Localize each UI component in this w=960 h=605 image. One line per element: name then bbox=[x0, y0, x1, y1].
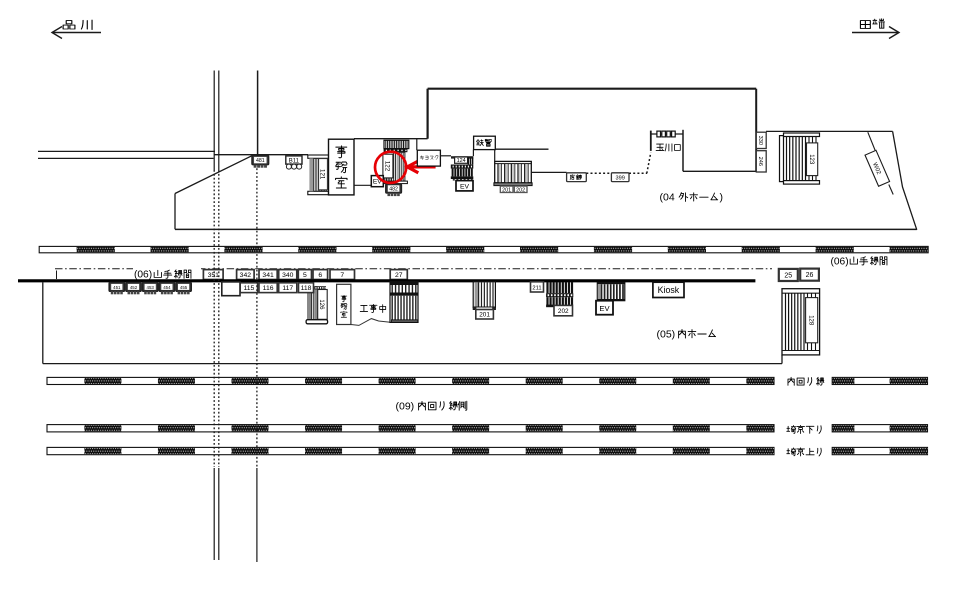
svg-text:341: 341 bbox=[262, 272, 274, 279]
svg-text:211: 211 bbox=[532, 285, 541, 291]
svg-text:117: 117 bbox=[282, 285, 293, 292]
svg-text:6: 6 bbox=[318, 272, 322, 279]
svg-text:340: 340 bbox=[282, 272, 294, 279]
svg-text:128: 128 bbox=[807, 315, 813, 326]
svg-text:202: 202 bbox=[516, 187, 525, 193]
svg-text:(06): (06) bbox=[134, 270, 152, 281]
svg-text:201: 201 bbox=[502, 187, 511, 193]
svg-text:5: 5 bbox=[303, 272, 307, 279]
svg-text:451: 451 bbox=[113, 285, 121, 290]
svg-text:481: 481 bbox=[256, 158, 265, 164]
svg-text:122: 122 bbox=[384, 161, 391, 172]
svg-text:): ) bbox=[720, 192, 724, 204]
svg-text:7: 7 bbox=[340, 272, 344, 279]
svg-text:121: 121 bbox=[319, 169, 326, 180]
svg-text:(04: (04 bbox=[660, 192, 675, 204]
svg-text:126: 126 bbox=[318, 299, 324, 310]
svg-text:118: 118 bbox=[301, 285, 312, 292]
svg-text:EV: EV bbox=[460, 183, 470, 190]
svg-text:123: 123 bbox=[808, 154, 814, 165]
svg-text:116: 116 bbox=[263, 285, 274, 292]
svg-text:482: 482 bbox=[389, 187, 398, 193]
svg-text:(09): (09) bbox=[396, 401, 415, 413]
svg-text:246: 246 bbox=[757, 157, 763, 166]
svg-text:27: 27 bbox=[395, 272, 403, 279]
svg-text:25: 25 bbox=[784, 272, 792, 279]
svg-text:453: 453 bbox=[147, 285, 155, 290]
svg-text:351: 351 bbox=[208, 272, 220, 279]
svg-text:452: 452 bbox=[130, 285, 138, 290]
svg-text:124: 124 bbox=[457, 158, 466, 164]
svg-text:(06): (06) bbox=[831, 256, 849, 267]
svg-text:Kiosk: Kiosk bbox=[658, 285, 680, 295]
svg-text:399: 399 bbox=[616, 176, 625, 182]
svg-text:330: 330 bbox=[757, 136, 763, 145]
svg-text:115: 115 bbox=[243, 285, 254, 292]
svg-text:455: 455 bbox=[180, 285, 188, 290]
svg-text:(05): (05) bbox=[657, 328, 676, 340]
svg-text:EV: EV bbox=[599, 304, 610, 313]
svg-text:B11: B11 bbox=[289, 158, 300, 164]
svg-text:202: 202 bbox=[558, 308, 569, 315]
svg-text:26: 26 bbox=[806, 272, 814, 279]
svg-text:201: 201 bbox=[479, 312, 490, 319]
svg-text:342: 342 bbox=[240, 272, 252, 279]
svg-text:454: 454 bbox=[163, 285, 171, 290]
